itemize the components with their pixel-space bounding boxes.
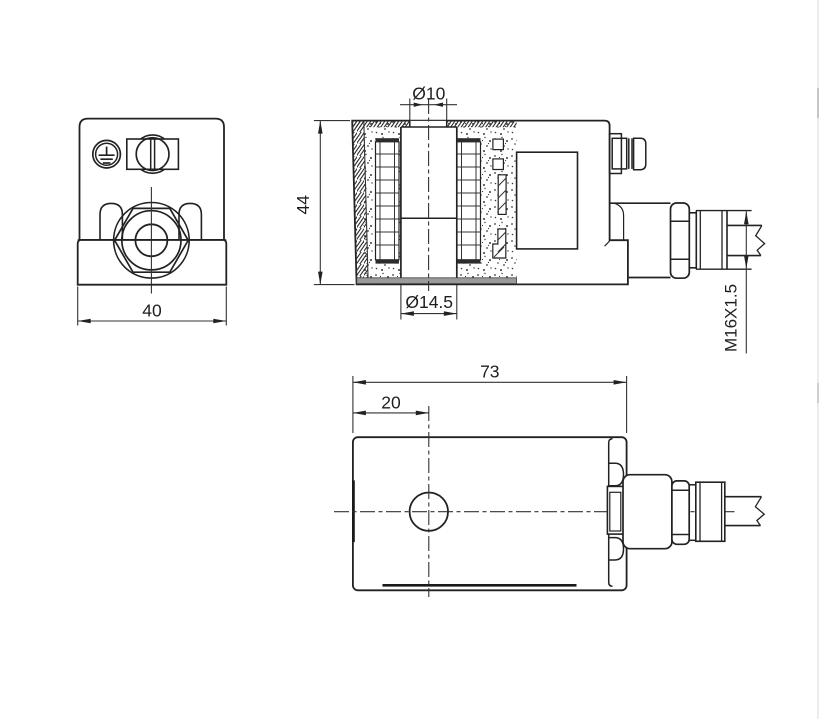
svg-text:44: 44	[293, 195, 313, 215]
svg-text:73: 73	[480, 362, 499, 382]
svg-text:20: 20	[381, 392, 401, 412]
svg-text:M16X1.5: M16X1.5	[722, 284, 741, 352]
svg-text:Ø14.5: Ø14.5	[405, 292, 453, 312]
svg-text:40: 40	[142, 301, 162, 321]
svg-text:Ø10: Ø10	[412, 83, 445, 103]
